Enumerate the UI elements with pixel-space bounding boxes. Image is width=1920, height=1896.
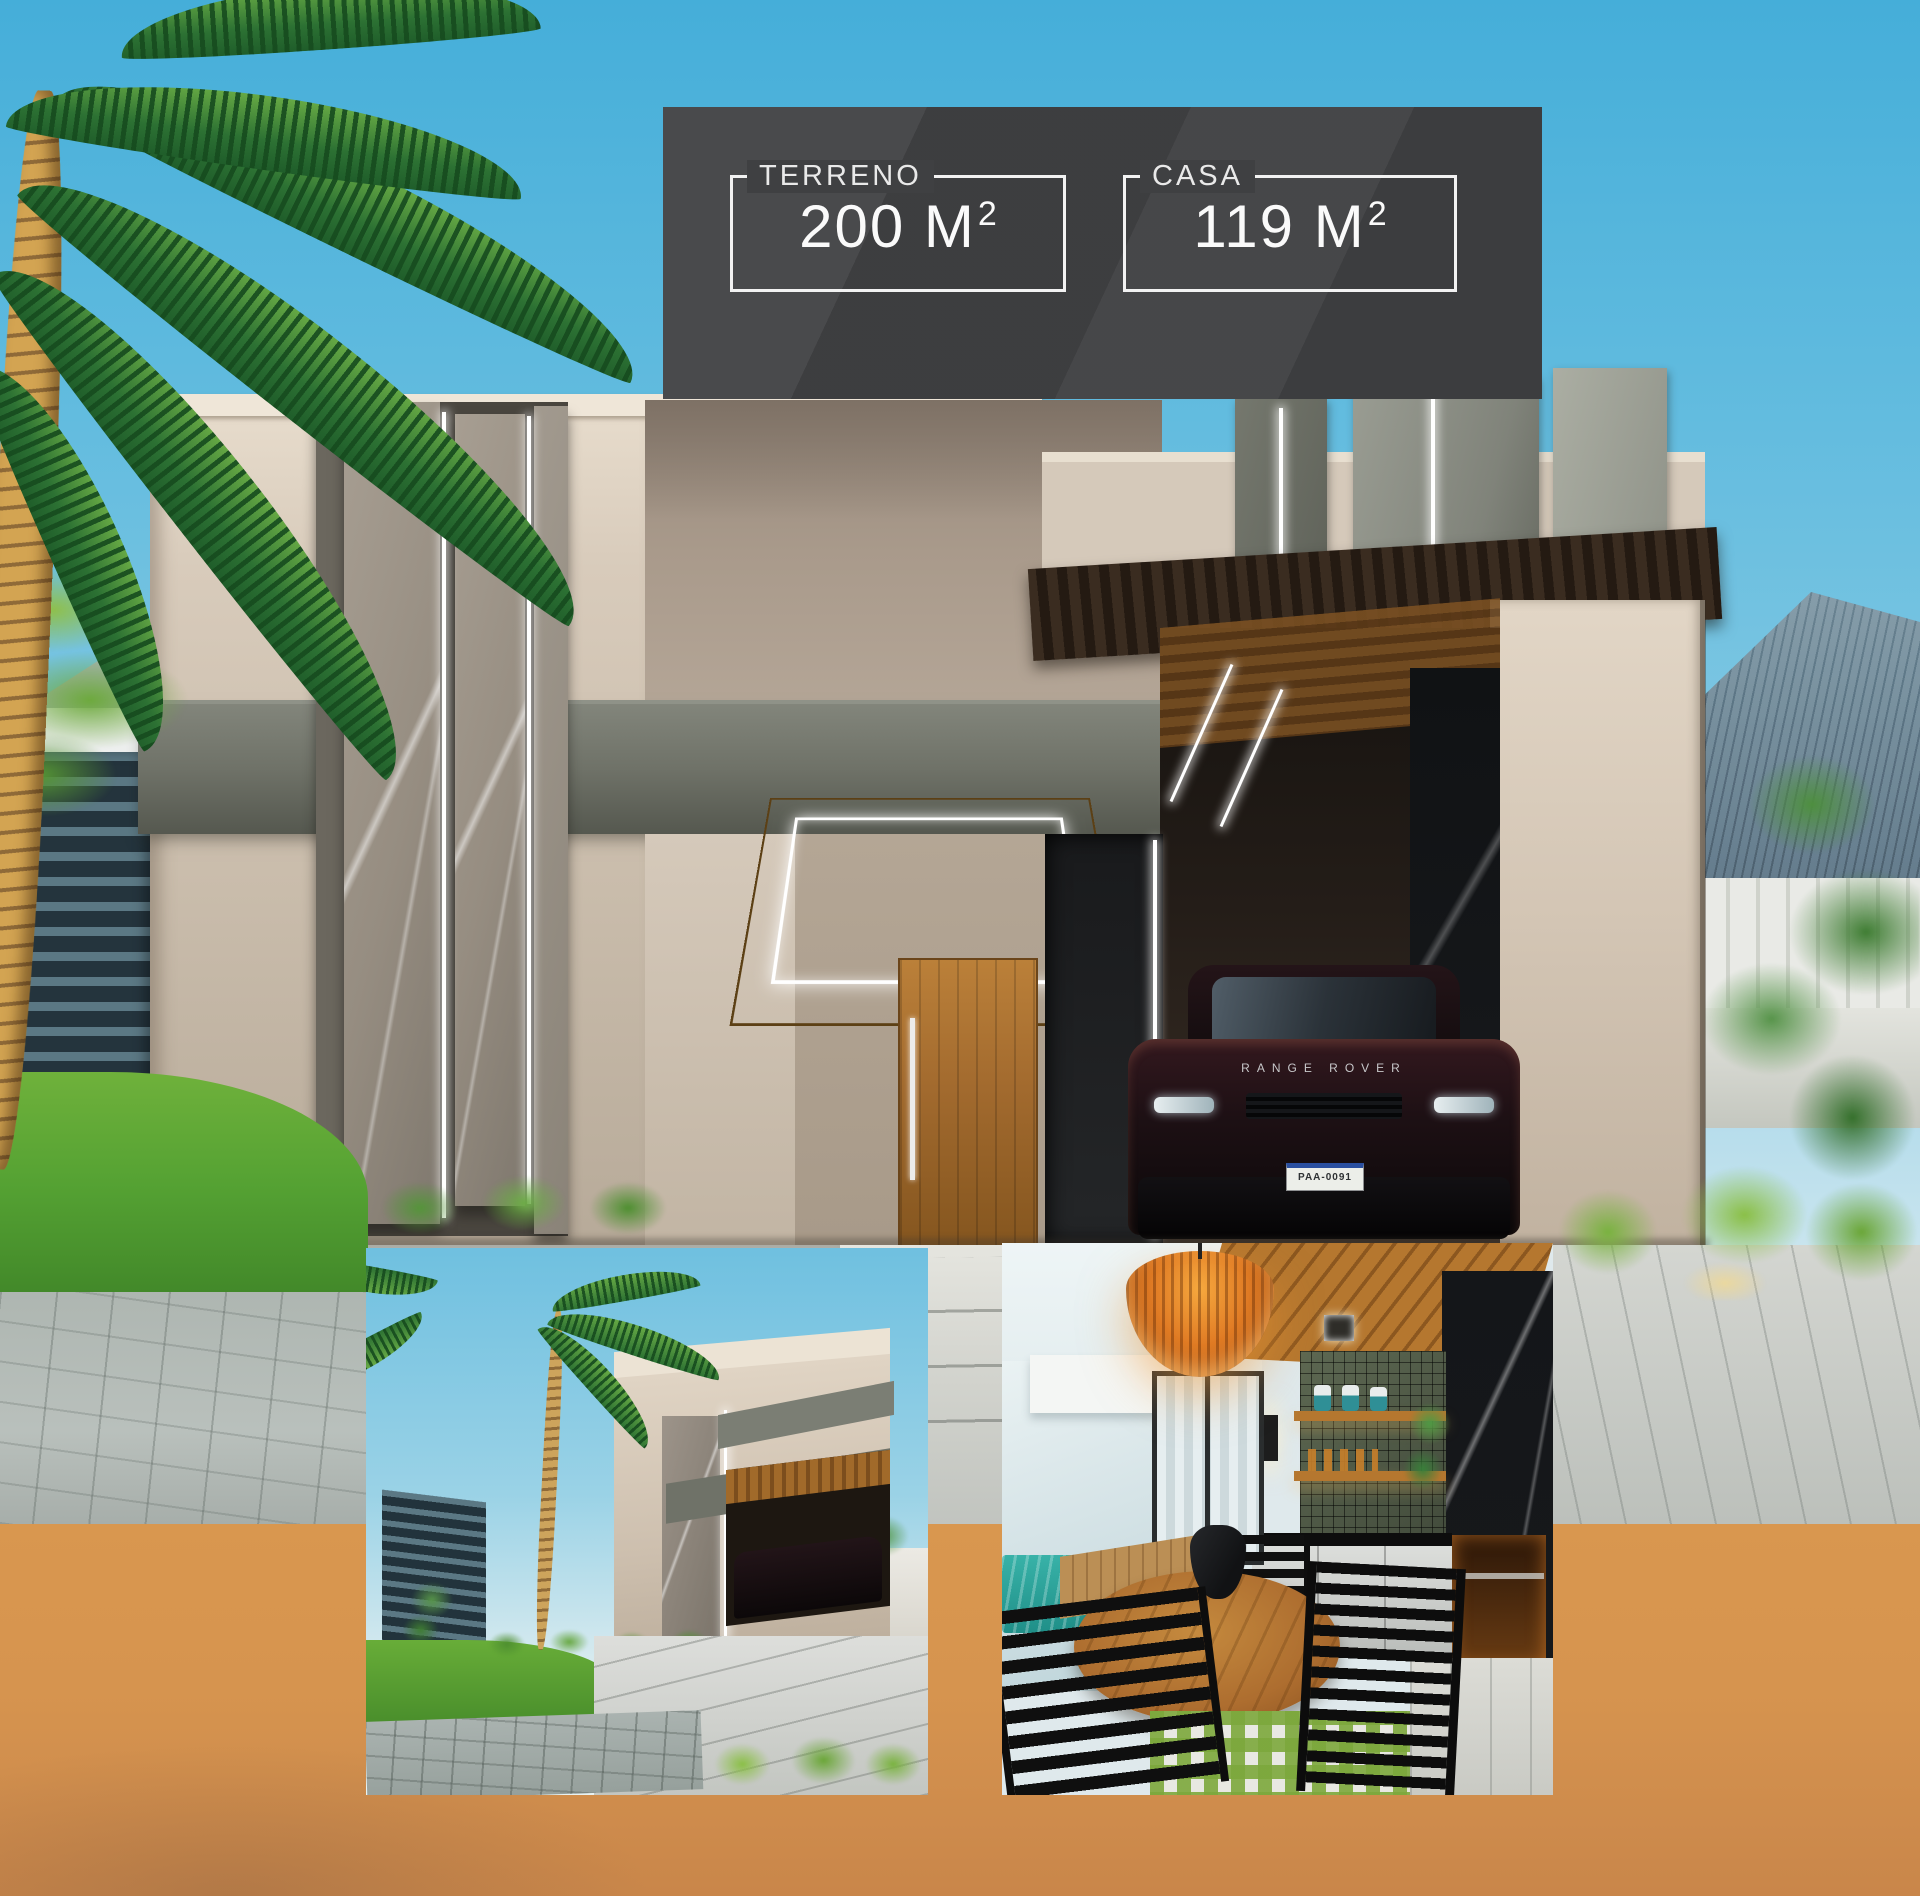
real-estate-promo-image: RANGE ROVER PAA-0091 TERRENO — [0, 0, 1920, 1896]
car-headlight-right — [1434, 1097, 1494, 1113]
door-handle — [910, 1018, 915, 1180]
car-hood-brand-text: RANGE ROVER — [1128, 1061, 1520, 1075]
inset-foreground-plants — [696, 1718, 928, 1795]
spec-value-number: 119 M — [1193, 193, 1365, 260]
front-door — [900, 960, 1036, 1245]
car-headlight-left — [1154, 1097, 1214, 1113]
inset-photo-gourmet-area — [1002, 1243, 1553, 1795]
spec-value-superscript: 2 — [1368, 195, 1389, 233]
inset-palm-trunk — [533, 1310, 566, 1650]
inset-palm-frond — [366, 1310, 433, 1405]
gourmet-canister — [1342, 1385, 1359, 1411]
inset-carport — [726, 1450, 890, 1626]
spec-label-terreno: TERRENO — [747, 160, 934, 193]
spec-value-superscript: 2 — [978, 195, 999, 233]
marble-slab — [316, 410, 346, 1228]
ornamental-grasses-right — [1530, 1130, 1920, 1300]
gourmet-wall-sconce — [1262, 1415, 1278, 1461]
spec-box-casa: CASA 119 M2 — [1123, 175, 1457, 292]
gourmet-shelf-plant — [1394, 1391, 1466, 1521]
gourmet-ceiling-light — [1324, 1315, 1354, 1341]
spec-label-casa: CASA — [1140, 160, 1255, 193]
marble-slab — [534, 406, 568, 1234]
gourmet-canister — [1370, 1387, 1387, 1411]
inset-marble-slab — [662, 1416, 720, 1642]
gourmet-chair — [1002, 1586, 1229, 1795]
inset-palm-frond — [366, 1254, 438, 1304]
spec-badge-panel: TERRENO 200 M2 CASA 119 M2 — [663, 107, 1542, 399]
gourmet-bottles — [1308, 1449, 1378, 1471]
inset-paver-walk — [366, 1710, 703, 1795]
spec-box-terreno: TERRENO 200 M2 — [730, 175, 1066, 292]
inset-palm-frond — [549, 1262, 701, 1314]
marble-slab — [344, 402, 440, 1224]
gourmet-grill-niche — [1452, 1535, 1546, 1667]
car-grille — [1246, 1093, 1402, 1119]
gourmet-pendant-cord — [1198, 1243, 1202, 1259]
pavement-left — [0, 1292, 372, 1524]
orange-footer-band — [0, 1524, 1920, 1896]
gourmet-canister — [1314, 1385, 1331, 1411]
gourmet-chair — [1296, 1561, 1466, 1795]
inset-parked-car — [734, 1535, 882, 1619]
canopy-led-outline — [771, 817, 1087, 984]
spec-value-number: 200 M — [799, 193, 976, 260]
car-license-plate: PAA-0091 — [1286, 1163, 1364, 1191]
inset-photo-exterior-angle — [366, 1248, 928, 1795]
gourmet-grill-shelf — [1454, 1573, 1544, 1579]
spec-value-casa: 119 M2 — [1126, 192, 1454, 261]
car-windshield — [1212, 977, 1436, 1043]
spec-value-terreno: 200 M2 — [733, 192, 1063, 261]
